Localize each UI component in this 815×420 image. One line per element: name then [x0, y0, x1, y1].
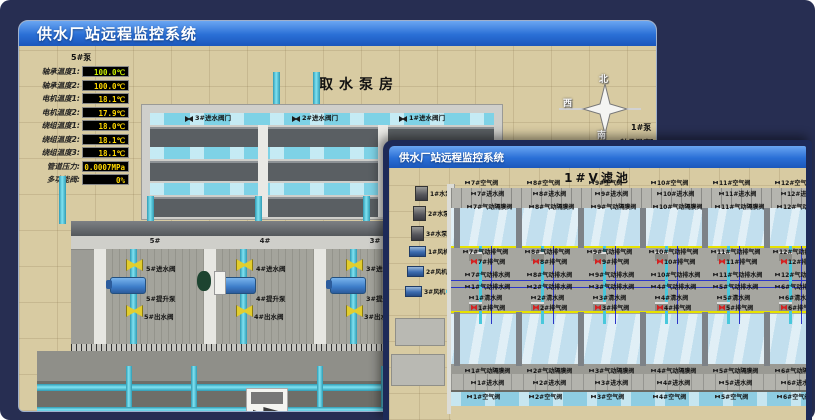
- diaphragm-valve[interactable]: 1#气动隔膜阀: [465, 366, 510, 375]
- telemetry-led-display: 18.1℃: [82, 93, 129, 104]
- valve-icon: [399, 116, 407, 122]
- bay-outlet-valve-label: 5#出水阀: [144, 311, 173, 321]
- valve-unit-panel: [251, 392, 283, 404]
- telemetry-row: 电机温度1: 18.1℃: [29, 93, 129, 104]
- clean-water-valve[interactable]: 3#清水阀: [593, 293, 626, 302]
- air-valve-label: 4#空气阀: [659, 392, 686, 401]
- pneumatic-exhaust-label: 11#气动排气阀: [717, 247, 760, 256]
- cell-divider: [702, 208, 708, 248]
- front-window-title: 供水厂站远程监控系统: [399, 150, 504, 165]
- lift-pump-icon[interactable]: [110, 277, 146, 294]
- telemetry-row: 绕组温度3: 18.1℃: [29, 147, 129, 158]
- valve-icon: [591, 205, 596, 209]
- air-valve[interactable]: 4#空气阀: [653, 392, 686, 401]
- exhaust-valve-label: 1#排气阀: [478, 303, 505, 312]
- valve-icon: [651, 273, 656, 277]
- equipment-icon: [411, 226, 424, 241]
- inlet-valve-label: 7#进水阀: [477, 189, 504, 198]
- pneumatic-drain-valve[interactable]: 8#气动排水阀: [527, 270, 572, 279]
- valve-icon: [529, 205, 534, 209]
- equipment-icon: [405, 286, 422, 297]
- inlet-valve[interactable]: 3#进水阀: [595, 378, 628, 387]
- valve-icon: [533, 381, 538, 385]
- cell-divider: [702, 312, 708, 366]
- valve-icon: [713, 285, 718, 289]
- valve-icon: [651, 285, 656, 289]
- alarm-valve-icon: [719, 259, 725, 265]
- clean-water-valve[interactable]: 4#清水阀: [655, 293, 688, 302]
- pneumatic-exhaust-label: 9#气动排气阀: [593, 247, 632, 256]
- pneumatic-drain-label: 9#气动排水阀: [595, 270, 634, 279]
- cell-divider: [516, 312, 522, 366]
- equipment-icon: [407, 266, 424, 277]
- telemetry-label: 管道压力:: [29, 161, 80, 172]
- exhaust-valve[interactable]: 2#排气阀: [533, 303, 567, 312]
- page-title: 取水泵房: [319, 74, 399, 94]
- diaphragm-valve[interactable]: 11#气动隔膜阀: [715, 202, 764, 211]
- inlet-valve[interactable]: 6#进水阀: [781, 378, 806, 387]
- valve-icon: [587, 250, 592, 254]
- telemetry-led-display: 0%: [82, 174, 129, 185]
- inlet-valve[interactable]: 9#进水阀: [595, 189, 628, 198]
- equipment-icon: [409, 246, 426, 257]
- diaphragm-valve[interactable]: 7#气动隔膜阀: [467, 202, 512, 211]
- pneumatic-drain-label: 5#气动排水阀: [719, 282, 758, 291]
- inlet-valve-label: 3#进水阀: [601, 378, 628, 387]
- butterfly-valve-icon: [253, 407, 279, 412]
- valve-icon: [773, 250, 778, 254]
- pneumatic-exhaust-valve[interactable]: 12#气动排气阀: [773, 247, 806, 256]
- diaphragm-valve-label: 8#气动隔膜阀: [535, 202, 574, 211]
- pneumatic-drain-label: 2#气动排水阀: [533, 282, 572, 291]
- air-valve[interactable]: 2#空气阀: [529, 392, 562, 401]
- filter-column: 9#空气阀 9#进水阀 9#气动隔膜阀 9#气动排气阀 9#排气阀 9#气动排水…: [581, 176, 643, 416]
- inlet-valve-label: 6#进水阀: [787, 378, 806, 387]
- exhaust-valve[interactable]: 8#排气阀: [533, 257, 567, 266]
- clean-water-valve-label: 2#清水阀: [537, 293, 564, 302]
- pneumatic-drain-valve[interactable]: 2#气动排水阀: [527, 282, 572, 291]
- valve-icon: [471, 381, 476, 385]
- inlet-valve-label: 10#进水阀: [663, 189, 694, 198]
- air-valve[interactable]: 12#空气阀: [775, 178, 806, 187]
- exhaust-valve-label: 10#排气阀: [664, 257, 695, 266]
- back-window-titlebar: 供水厂站远程监控系统: [19, 21, 656, 46]
- diaphragm-valve[interactable]: 3#气动隔膜阀: [589, 366, 634, 375]
- exhaust-valve-label: 5#排气阀: [726, 303, 753, 312]
- telemetry-label: 电机温度1:: [29, 93, 80, 104]
- pump5-telemetry-panel: 5#泵 轴承温度1: 100.0℃ 轴承温度2: 100.0℃ 电机温度1: 1…: [29, 52, 129, 188]
- air-valve-label: 2#空气阀: [535, 392, 562, 401]
- exhaust-valve-label: 4#排气阀: [664, 303, 691, 312]
- telemetry-label: 绕组温度2:: [29, 134, 80, 145]
- telemetry-led-display: 18.1℃: [82, 134, 129, 145]
- telemetry-label: 轴承温度1:: [29, 66, 80, 77]
- feeder-pipe: [59, 176, 66, 224]
- air-valve[interactable]: 3#空气阀: [591, 392, 624, 401]
- diaphragm-valve[interactable]: 2#气动隔膜阀: [527, 366, 572, 375]
- valve-icon: [465, 273, 470, 277]
- compass-west-label: 西: [563, 96, 572, 109]
- clean-water-valve-label: 1#清水阀: [475, 293, 502, 302]
- valve-icon: [591, 395, 596, 399]
- valve-icon: [651, 181, 656, 185]
- alarm-valve-icon: [595, 305, 601, 311]
- diaphragm-valve-label: 5#气动隔膜阀: [719, 366, 758, 375]
- pump5-panel-title: 5#泵: [71, 52, 129, 63]
- filter-pool-scene: 1#V滤池 1#水泵 2#水泵 3#水泵: [389, 168, 806, 420]
- pneumatic-drain-valve[interactable]: 1#气动排水阀: [465, 282, 510, 291]
- diaphragm-valve-label: 4#气动隔膜阀: [657, 366, 696, 375]
- clean-water-valve-label: 3#清水阀: [599, 293, 626, 302]
- telemetry-row: 绕组温度2: 18.1℃: [29, 134, 129, 145]
- telemetry-led-display: 17.9℃: [82, 107, 129, 118]
- pneumatic-drain-valve[interactable]: 9#气动排水阀: [589, 270, 634, 279]
- pneumatic-exhaust-label: 12#气动排气阀: [779, 247, 806, 256]
- telemetry-row: 多功能阀: 0%: [29, 174, 129, 185]
- feeder-pipe: [363, 196, 370, 224]
- exhaust-valve[interactable]: 5#排气阀: [719, 303, 753, 312]
- pneumatic-exhaust-valve[interactable]: 8#气动排气阀: [525, 247, 570, 256]
- valve-icon: [655, 296, 660, 300]
- lift-pump-icon[interactable]: [330, 277, 366, 294]
- intake-valve-label: 1#进水阀门: [409, 112, 445, 122]
- pneumatic-drain-valve[interactable]: 7#气动排水阀: [465, 270, 510, 279]
- diaphragm-valve-label: 1#气动隔膜阀: [471, 366, 510, 375]
- pneumatic-drain-valve[interactable]: 11#气动排水阀: [713, 270, 762, 279]
- telemetry-row: 轴承温度2: 100.0℃: [29, 80, 129, 91]
- pump-bay: 4# 4#进水阀 4#提升泵 4#出水阀: [204, 249, 314, 344]
- diaphragm-valve-label: 12#气动隔膜阀: [783, 202, 806, 211]
- air-valve[interactable]: 8#空气阀: [527, 178, 560, 187]
- valve-icon: [715, 205, 720, 209]
- diaphragm-valve-label: 9#气动隔膜阀: [597, 202, 636, 211]
- alarm-valve-icon: [781, 259, 787, 265]
- exhaust-valve[interactable]: 6#排气阀: [781, 303, 806, 312]
- valve-icon: [713, 181, 718, 185]
- valve-icon: [589, 181, 594, 185]
- air-valve[interactable]: 6#空气阀: [777, 392, 806, 401]
- cell-divider: [640, 208, 646, 248]
- valve-icon: [527, 285, 532, 289]
- equipment-label: 3#水泵: [426, 229, 447, 238]
- compass-north-label: 北: [599, 72, 608, 85]
- pump1-panel-title: 1#泵: [631, 122, 657, 133]
- alarm-valve-icon: [471, 305, 477, 311]
- front-window-titlebar: 供水厂站远程监控系统: [389, 146, 806, 168]
- pneumatic-drain-valve[interactable]: 12#气动排水阀: [775, 270, 806, 279]
- exhaust-valve[interactable]: 4#排气阀: [657, 303, 691, 312]
- air-valve-label: 7#空气阀: [471, 178, 498, 187]
- pneumatic-exhaust-valve[interactable]: 9#气动排气阀: [587, 247, 632, 256]
- pneumatic-exhaust-valve[interactable]: 10#气动排气阀: [649, 247, 698, 256]
- alarm-valve-icon: [657, 259, 663, 265]
- air-valve-label: 8#空气阀: [533, 178, 560, 187]
- feeder-pipe: [255, 196, 262, 224]
- control-cabinet: [214, 271, 226, 295]
- pneumatic-drain-valve[interactable]: 6#气动排水阀: [775, 282, 806, 291]
- cell-divider: [578, 208, 584, 248]
- valve-icon: [292, 116, 300, 122]
- equipment-icon: [413, 206, 426, 221]
- valve-icon: [775, 273, 780, 277]
- diaphragm-valve-label: 6#气动隔膜阀: [781, 366, 806, 375]
- cell-divider: [764, 208, 770, 248]
- discharge-branch-pipe: [317, 366, 323, 410]
- telemetry-label: 电机温度2:: [29, 107, 80, 118]
- valve-icon: [463, 250, 468, 254]
- inlet-valve[interactable]: 7#进水阀: [471, 189, 504, 198]
- pneumatic-drain-valve[interactable]: 10#气动排水阀: [651, 270, 700, 279]
- exhaust-valve-label: 8#排气阀: [540, 257, 567, 266]
- valve-icon: [713, 369, 718, 373]
- pump-cap: [326, 280, 332, 289]
- clean-water-valve[interactable]: 2#清水阀: [531, 293, 564, 302]
- valve-icon: [711, 250, 716, 254]
- alarm-valve-icon: [657, 305, 663, 311]
- telemetry-row: 电机温度2: 17.9℃: [29, 107, 129, 118]
- pneumatic-drain-label: 12#气动排水阀: [781, 270, 806, 279]
- filter-column: 8#空气阀 8#进水阀 8#气动隔膜阀 8#气动排气阀 8#排气阀 8#气动排水…: [519, 176, 581, 416]
- riser-pipe: [273, 72, 280, 104]
- bay-inlet-valve-label: 5#进水阀: [146, 263, 175, 273]
- valve-icon: [589, 369, 594, 373]
- discharge-branch-pipe: [191, 366, 197, 410]
- filter-column: 7#空气阀 7#进水阀 7#气动隔膜阀 7#气动排气阀 7#排气阀 7#气动排水…: [457, 176, 519, 416]
- discharge-branch-pipe: [126, 366, 132, 410]
- pneumatic-drain-valve[interactable]: 5#气动排水阀: [713, 282, 758, 291]
- alarm-valve-icon: [719, 305, 725, 311]
- pneumatic-exhaust-label: 8#气动排气阀: [531, 247, 570, 256]
- cell-divider: [578, 312, 584, 366]
- air-valve[interactable]: 10#空气阀: [651, 178, 688, 187]
- pump-bay-header: 5#: [106, 237, 204, 245]
- bay-pump-label: 5#提升泵: [146, 293, 175, 303]
- pneumatic-drain-label: 10#气动排水阀: [657, 270, 700, 279]
- inlet-valve[interactable]: 4#进水阀: [657, 378, 690, 387]
- telemetry-led-display: 100.0℃: [82, 80, 129, 91]
- diaphragm-valve[interactable]: 5#气动隔膜阀: [713, 366, 758, 375]
- exhaust-valve[interactable]: 3#排气阀: [595, 303, 629, 312]
- valve-icon: [589, 285, 594, 289]
- equipment-icon: [415, 186, 428, 201]
- telemetry-led-display: 0.0007MPa: [82, 161, 129, 172]
- clean-water-valve[interactable]: 1#清水阀: [469, 293, 502, 302]
- inlet-valve[interactable]: 1#进水阀: [471, 378, 504, 387]
- exhaust-valve[interactable]: 7#排气阀: [471, 257, 505, 266]
- valve-icon: [527, 273, 532, 277]
- alarm-valve-icon: [533, 259, 539, 265]
- valve-icon: [467, 205, 472, 209]
- exhaust-valve-label: 9#排气阀: [602, 257, 629, 266]
- clean-water-valve-label: 6#清水阀: [785, 293, 806, 302]
- intake-valve[interactable]: 2#进水阀门: [292, 112, 348, 122]
- exhaust-valve-label: 7#排气阀: [478, 257, 505, 266]
- valve-icon: [717, 296, 722, 300]
- valve-icon: [527, 181, 532, 185]
- pump-bay: 5# 5#进水阀 5#提升泵 5#出水阀: [94, 249, 204, 344]
- diaphragm-valve[interactable]: 9#气动隔膜阀: [591, 202, 636, 211]
- valve-icon: [529, 395, 534, 399]
- diaphragm-valve[interactable]: 10#气动隔膜阀: [653, 202, 702, 211]
- telemetry-label: 绕组温度1:: [29, 120, 80, 131]
- inlet-valve-label: 2#进水阀: [539, 378, 566, 387]
- filter-pool-window: 供水厂站远程监控系统 1#V滤池 1#水泵 2#水泵: [383, 140, 812, 420]
- riser-pipe: [313, 72, 320, 104]
- air-valve-label: 3#空气阀: [597, 392, 624, 401]
- clean-water-valve-label: 5#清水阀: [723, 293, 750, 302]
- intake-valve-label: 3#进水阀门: [195, 112, 231, 122]
- pneumatic-exhaust-valve[interactable]: 7#气动排气阀: [463, 247, 508, 256]
- valve-icon: [595, 381, 600, 385]
- valve-icon: [653, 395, 658, 399]
- valve-icon: [713, 273, 718, 277]
- desktop: { "colors": { "titlebar_blue": "#2a6fd6"…: [0, 0, 815, 420]
- diaphragm-valve[interactable]: 4#气动隔膜阀: [651, 366, 696, 375]
- valve-icon: [657, 381, 662, 385]
- filter-pool-window-inner: 供水厂站远程监控系统 1#V滤池 1#水泵 2#水泵: [389, 146, 806, 420]
- telemetry-label: 多功能阀:: [29, 174, 80, 185]
- valve-icon: [777, 205, 782, 209]
- air-valve[interactable]: 7#空气阀: [465, 178, 498, 187]
- exhaust-valve-label: 12#排气阀: [788, 257, 806, 266]
- telemetry-row: 轴承温度1: 100.0℃: [29, 66, 129, 77]
- valve-icon: [781, 381, 786, 385]
- diaphragm-valve-label: 10#气动隔膜阀: [659, 202, 702, 211]
- telemetry-row: 管道压力: 0.0007MPa: [29, 161, 129, 172]
- valve-icon: [775, 285, 780, 289]
- pneumatic-drain-label: 7#气动排水阀: [471, 270, 510, 279]
- exhaust-valve-label: 3#排气阀: [602, 303, 629, 312]
- cell-divider: [454, 208, 460, 248]
- pneumatic-exhaust-label: 10#气动排气阀: [655, 247, 698, 256]
- valve-icon: [595, 192, 600, 196]
- alarm-valve-icon: [781, 305, 787, 311]
- inlet-valve-label: 11#进水阀: [725, 189, 756, 198]
- valve-icon: [719, 192, 724, 196]
- inlet-valve[interactable]: 2#进水阀: [533, 378, 566, 387]
- filter-column: 12#空气阀 12#进水阀 12#气动隔膜阀 12#气动排气阀 12#排气阀 1…: [767, 176, 806, 416]
- equipment-label: 3#风机: [424, 287, 445, 296]
- clean-water-valve[interactable]: 6#清水阀: [779, 293, 806, 302]
- air-valve[interactable]: 5#空气阀: [715, 392, 748, 401]
- valve-icon: [471, 192, 476, 196]
- exhaust-valve[interactable]: 1#排气阀: [471, 303, 505, 312]
- intake-valve[interactable]: 1#进水阀门: [399, 112, 455, 122]
- air-valve-label: 11#空气阀: [719, 178, 750, 187]
- pneumatic-drain-label: 11#气动排水阀: [719, 270, 762, 279]
- pneumatic-drain-valve[interactable]: 3#气动排水阀: [589, 282, 634, 291]
- exhaust-valve[interactable]: 10#排气阀: [657, 257, 695, 266]
- telemetry-label: 绕组温度3:: [29, 147, 80, 158]
- telemetry-row: 绕组温度1: 18.0℃: [29, 120, 129, 131]
- air-valve-label: 10#空气阀: [657, 178, 688, 187]
- diaphragm-valve[interactable]: 8#气动隔膜阀: [529, 202, 574, 211]
- alarm-valve-icon: [533, 305, 539, 311]
- alarm-valve-icon: [471, 259, 477, 265]
- air-valve-label: 12#空气阀: [781, 178, 806, 187]
- pneumatic-drain-label: 4#气动排水阀: [657, 282, 696, 291]
- bay-pump-label: 4#提升泵: [256, 293, 285, 303]
- equipment-platform: [391, 354, 445, 386]
- valve-icon: [775, 369, 780, 373]
- inlet-valve-label: 9#进水阀: [601, 189, 628, 198]
- valve-icon: [589, 273, 594, 277]
- pneumatic-exhaust-label: 7#气动排气阀: [469, 247, 508, 256]
- air-valve-label: 6#空气阀: [783, 392, 806, 401]
- valve-icon: [779, 296, 784, 300]
- cell-divider: [454, 312, 460, 366]
- back-window-title: 供水厂站远程监控系统: [37, 23, 197, 44]
- bay-inlet-valve-label: 4#进水阀: [256, 263, 285, 273]
- pneumatic-exhaust-valve[interactable]: 11#气动排气阀: [711, 247, 760, 256]
- telemetry-led-display: 18.1℃: [82, 147, 129, 158]
- pneumatic-drain-label: 3#气动排水阀: [595, 282, 634, 291]
- bay-outlet-valve-label: 4#出水阀: [254, 311, 283, 321]
- diaphragm-valve-label: 11#气动隔膜阀: [721, 202, 764, 211]
- valve-icon: [715, 395, 720, 399]
- inlet-valve[interactable]: 10#进水阀: [657, 189, 694, 198]
- diaphragm-valve-label: 3#气动隔膜阀: [595, 366, 634, 375]
- air-valve-label: 9#空气阀: [595, 178, 622, 187]
- exhaust-valve[interactable]: 9#排气阀: [595, 257, 629, 266]
- valve-icon: [465, 285, 470, 289]
- exhaust-valve[interactable]: 12#排气阀: [781, 257, 806, 266]
- valve-icon: [533, 192, 538, 196]
- air-valve-label: 1#空气阀: [473, 392, 500, 401]
- inlet-valve[interactable]: 5#进水阀: [719, 378, 752, 387]
- cell-divider: [640, 312, 646, 366]
- exhaust-valve-label: 11#排气阀: [726, 257, 757, 266]
- valve-icon: [593, 296, 598, 300]
- air-valve[interactable]: 11#空气阀: [713, 178, 750, 187]
- diaphragm-valve-label: 7#气动隔膜阀: [473, 202, 512, 211]
- exhaust-valve-label: 2#排气阀: [540, 303, 567, 312]
- valve-icon: [775, 181, 780, 185]
- inlet-valve[interactable]: 11#进水阀: [719, 189, 756, 198]
- air-valve[interactable]: 1#空气阀: [467, 392, 500, 401]
- valve-icon: [777, 395, 782, 399]
- exhaust-valve[interactable]: 11#排气阀: [719, 257, 757, 266]
- telemetry-led-display: 18.0℃: [82, 120, 129, 131]
- inlet-valve-label: 5#进水阀: [725, 378, 752, 387]
- valve-icon: [719, 381, 724, 385]
- pneumatic-drain-valve[interactable]: 4#气动排水阀: [651, 282, 696, 291]
- diaphragm-valve[interactable]: 12#气动隔膜阀: [777, 202, 806, 211]
- diaphragm-valve[interactable]: 6#气动隔膜阀: [775, 366, 806, 375]
- valve-icon: [651, 369, 656, 373]
- pneumatic-drain-label: 1#气动排水阀: [471, 282, 510, 291]
- air-valve[interactable]: 9#空气阀: [589, 178, 622, 187]
- valve-icon: [649, 250, 654, 254]
- intake-valve[interactable]: 3#进水阀门: [185, 112, 241, 122]
- valve-icon: [465, 369, 470, 373]
- inlet-valve[interactable]: 12#进水阀: [781, 189, 806, 198]
- pneumatic-drain-label: 6#气动排水阀: [781, 282, 806, 291]
- clean-water-valve[interactable]: 5#清水阀: [717, 293, 750, 302]
- inlet-valve[interactable]: 8#进水阀: [533, 189, 566, 198]
- inlet-valve-label: 4#进水阀: [663, 378, 690, 387]
- alarm-valve-icon: [595, 259, 601, 265]
- cell-divider: [516, 208, 522, 248]
- feeder-pipe: [147, 196, 154, 224]
- cell-divider: [764, 312, 770, 366]
- main-valve-unit[interactable]: [246, 388, 288, 412]
- valve-icon: [653, 205, 658, 209]
- diaphragm-valve-label: 2#气动隔膜阀: [533, 366, 572, 375]
- valve-icon: [185, 116, 193, 122]
- valve-icon: [781, 192, 786, 196]
- inlet-valve-label: 12#进水阀: [787, 189, 806, 198]
